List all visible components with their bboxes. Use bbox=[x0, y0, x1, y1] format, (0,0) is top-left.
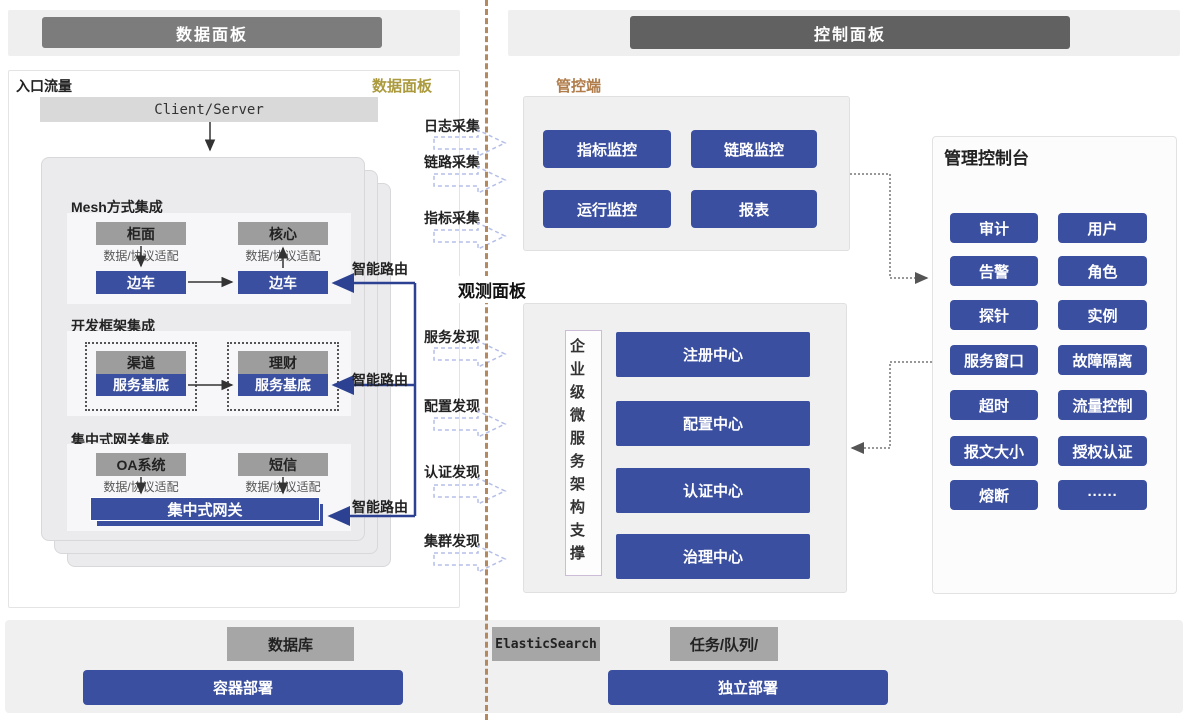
console-node-audit: 审计 bbox=[950, 213, 1038, 243]
flow-arrow-icon bbox=[433, 545, 507, 573]
console-node-message-size: 报文大小 bbox=[950, 436, 1038, 466]
gateway-node: 集中式网关 bbox=[90, 497, 320, 521]
management-console-title: 管理控制台 bbox=[944, 144, 1029, 169]
flow-arrow-icon bbox=[433, 129, 507, 157]
auth-center-node: 认证中心 bbox=[616, 468, 810, 513]
adapter-label: 数据/协议适配 bbox=[226, 247, 340, 264]
console-node-role: 角色 bbox=[1058, 256, 1147, 286]
monitor-metric-node: 指标监控 bbox=[543, 130, 671, 168]
console-node-probe: 探针 bbox=[950, 300, 1038, 330]
elasticsearch-node: ElasticSearch bbox=[492, 627, 600, 661]
console-node-authorization: 授权认证 bbox=[1058, 436, 1147, 466]
console-node-user: 用户 bbox=[1058, 213, 1147, 243]
app-node-hexin: 核心 bbox=[238, 222, 328, 245]
flow-arrow-icon bbox=[433, 410, 507, 438]
database-node: 数据库 bbox=[227, 627, 354, 661]
container-deploy-node: 容器部署 bbox=[83, 670, 403, 705]
console-node-timeout: 超时 bbox=[950, 390, 1038, 420]
monitor-runtime-node: 运行监控 bbox=[543, 190, 671, 228]
sidecar-node-right: 边车 bbox=[238, 271, 328, 294]
app-node-licai: 理财 bbox=[238, 351, 328, 374]
console-node-service-window: 服务窗口 bbox=[950, 345, 1038, 375]
service-base-left: 服务基底 bbox=[96, 374, 186, 396]
flow-arrow-icon bbox=[433, 166, 507, 194]
smart-route-label-1: 智能路由 bbox=[352, 259, 408, 279]
config-center-node: 配置中心 bbox=[616, 401, 810, 446]
monitor-trace-node: 链路监控 bbox=[691, 130, 817, 168]
console-node-fault-isolation: 故障隔离 bbox=[1058, 345, 1147, 375]
control-end-label: 管控端 bbox=[556, 75, 601, 96]
observe-panel-label: 观测面板 bbox=[455, 276, 529, 303]
app-node-oa: OA系统 bbox=[96, 453, 186, 476]
sidecar-node-left: 边车 bbox=[96, 271, 186, 294]
client-server-node: Client/Server bbox=[40, 97, 378, 122]
panel-divider bbox=[485, 0, 488, 720]
control-plane-header: 控制面板 bbox=[630, 16, 1070, 49]
console-node-more: ······ bbox=[1058, 480, 1147, 510]
flow-arrow-icon bbox=[433, 222, 507, 250]
smart-route-label-3: 智能路由 bbox=[352, 497, 408, 517]
data-plane-label: 数据面板 bbox=[372, 75, 432, 96]
flow-arrow-icon bbox=[433, 340, 507, 368]
smart-route-label-2: 智能路由 bbox=[352, 370, 408, 390]
governance-center-node: 治理中心 bbox=[616, 534, 810, 579]
app-node-sms: 短信 bbox=[238, 453, 328, 476]
adapter-label: 数据/协议适配 bbox=[84, 478, 198, 495]
console-node-circuit-break: 熔断 bbox=[950, 480, 1038, 510]
console-node-instance: 实例 bbox=[1058, 300, 1147, 330]
standalone-deploy-node: 独立部署 bbox=[608, 670, 888, 705]
flow-arrow-icon bbox=[433, 477, 507, 505]
service-base-right: 服务基底 bbox=[238, 374, 328, 396]
registry-center-node: 注册中心 bbox=[616, 332, 810, 377]
console-node-flow-control: 流量控制 bbox=[1058, 390, 1147, 420]
app-node-guimian: 柜面 bbox=[96, 222, 186, 245]
architecture-diagram: 数据面板 控制面板 入口流量 数据面板 Client/Server Mesh方式… bbox=[0, 0, 1189, 720]
data-plane-header: 数据面板 bbox=[42, 17, 382, 48]
console-node-alert: 告警 bbox=[950, 256, 1038, 286]
entry-traffic-label: 入口流量 bbox=[16, 76, 72, 96]
adapter-label: 数据/协议适配 bbox=[226, 478, 340, 495]
adapter-label: 数据/协议适配 bbox=[84, 247, 198, 264]
app-node-qudao: 渠道 bbox=[96, 351, 186, 374]
report-node: 报表 bbox=[691, 190, 817, 228]
microservice-support-label: 企业级微服务架构支撑 bbox=[565, 330, 602, 576]
task-queue-node: 任务/队列/ bbox=[670, 627, 778, 661]
